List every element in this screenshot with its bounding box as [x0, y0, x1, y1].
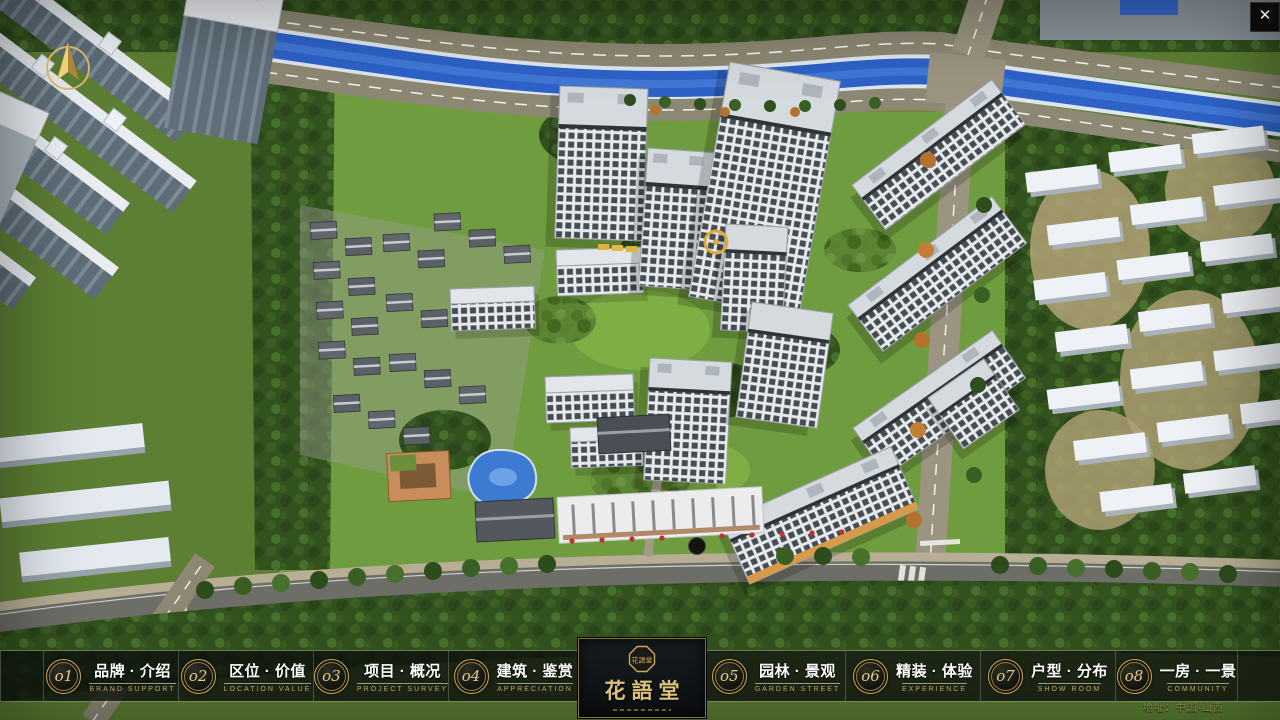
nav-title: 项目 · 概况 — [364, 660, 441, 681]
nav-title: 区位 · 价值 — [229, 660, 306, 681]
nav-subtitle: APPRECIATION — [497, 683, 573, 693]
nav-badge-06: o6 — [853, 659, 888, 694]
project-address: 地址：中国·山西 — [1143, 699, 1224, 714]
orange-clubhouse — [387, 450, 451, 501]
nav-item-floorplans[interactable]: o7 户型 · 分布 SHOW ROOM — [980, 651, 1115, 701]
logo-seal-emblem-icon: 花語堂 — [628, 645, 656, 673]
nav-title: 户型 · 分布 — [1031, 660, 1108, 681]
nav-item-garden-landscape[interactable]: o5 园林 · 景观 GARDEN STREET — [706, 651, 845, 701]
nav-subtitle: GARDEN STREET — [755, 683, 841, 693]
nav-title: 品牌 · 介绍 — [94, 660, 171, 681]
nav-subtitle: PROJECT SURVEY — [357, 683, 448, 693]
close-button[interactable]: ✕ — [1250, 2, 1280, 32]
pavilion-roof — [597, 414, 671, 454]
nav-item-architecture[interactable]: o4 建筑 · 鉴赏 APPRECIATION — [448, 651, 578, 701]
compass-icon — [38, 30, 98, 96]
tower — [726, 301, 834, 437]
nav-spacer-right — [1237, 651, 1280, 701]
nav-subtitle: EXPERIENCE — [902, 683, 967, 693]
tower — [545, 86, 648, 250]
nav-badge-05: o5 — [712, 659, 747, 694]
nav-badge-04: o4 — [454, 659, 489, 694]
nav-badge-07: o7 — [988, 659, 1023, 694]
nav-title: 精装 · 体验 — [896, 660, 973, 681]
nav-item-interior-experience[interactable]: o6 精装 · 体验 EXPERIENCE — [845, 651, 980, 701]
logo-tagline-rule — [613, 709, 671, 711]
entrance-feature-circle — [689, 538, 706, 555]
nav-badge-03: o3 — [314, 659, 349, 694]
gatehouse-roof — [475, 498, 555, 542]
nav-subtitle: BRAND SUPPORT — [89, 683, 175, 693]
nav-title: 一房 · 一景 — [1160, 660, 1237, 681]
nav-badge-01: o1 — [46, 659, 81, 694]
nav-title: 建筑 · 鉴赏 — [497, 660, 574, 681]
nav-badge-08: o8 — [1117, 659, 1152, 694]
nav-title: 园林 · 景观 — [759, 660, 836, 681]
nav-item-room-with-view[interactable]: o8 一房 · 一景 COMMUNITY — [1115, 651, 1237, 701]
masterplan-3d-view[interactable] — [0, 0, 1280, 720]
close-icon: ✕ — [1259, 7, 1272, 24]
compass-north-indicator — [38, 30, 98, 96]
nav-item-project-survey[interactable]: o3 项目 · 概况 PROJECT SURVEY — [313, 651, 448, 701]
nav-subtitle: SHOW ROOM — [1038, 683, 1102, 693]
svg-text:花語堂: 花語堂 — [632, 656, 653, 665]
nav-item-location-value[interactable]: o2 区位 · 价值 LOCATION VALUE — [178, 651, 313, 701]
nav-subtitle: COMMUNITY — [1167, 683, 1228, 693]
logo-home-button[interactable]: 花語堂 花語堂 — [578, 638, 706, 718]
nav-subtitle: LOCATION VALUE — [224, 683, 312, 693]
nav-item-brand-intro[interactable]: o1 品牌 · 介绍 BRAND SUPPORT — [43, 651, 178, 701]
nav-spacer-left — [0, 651, 43, 701]
presentation-window: ✕ o1 品牌 · 介绍 BRAND SUPPORT o2 区位 · 价值 LO… — [0, 0, 1280, 720]
nav-badge-02: o2 — [181, 659, 216, 694]
logo-title: 花語堂 — [599, 675, 686, 705]
